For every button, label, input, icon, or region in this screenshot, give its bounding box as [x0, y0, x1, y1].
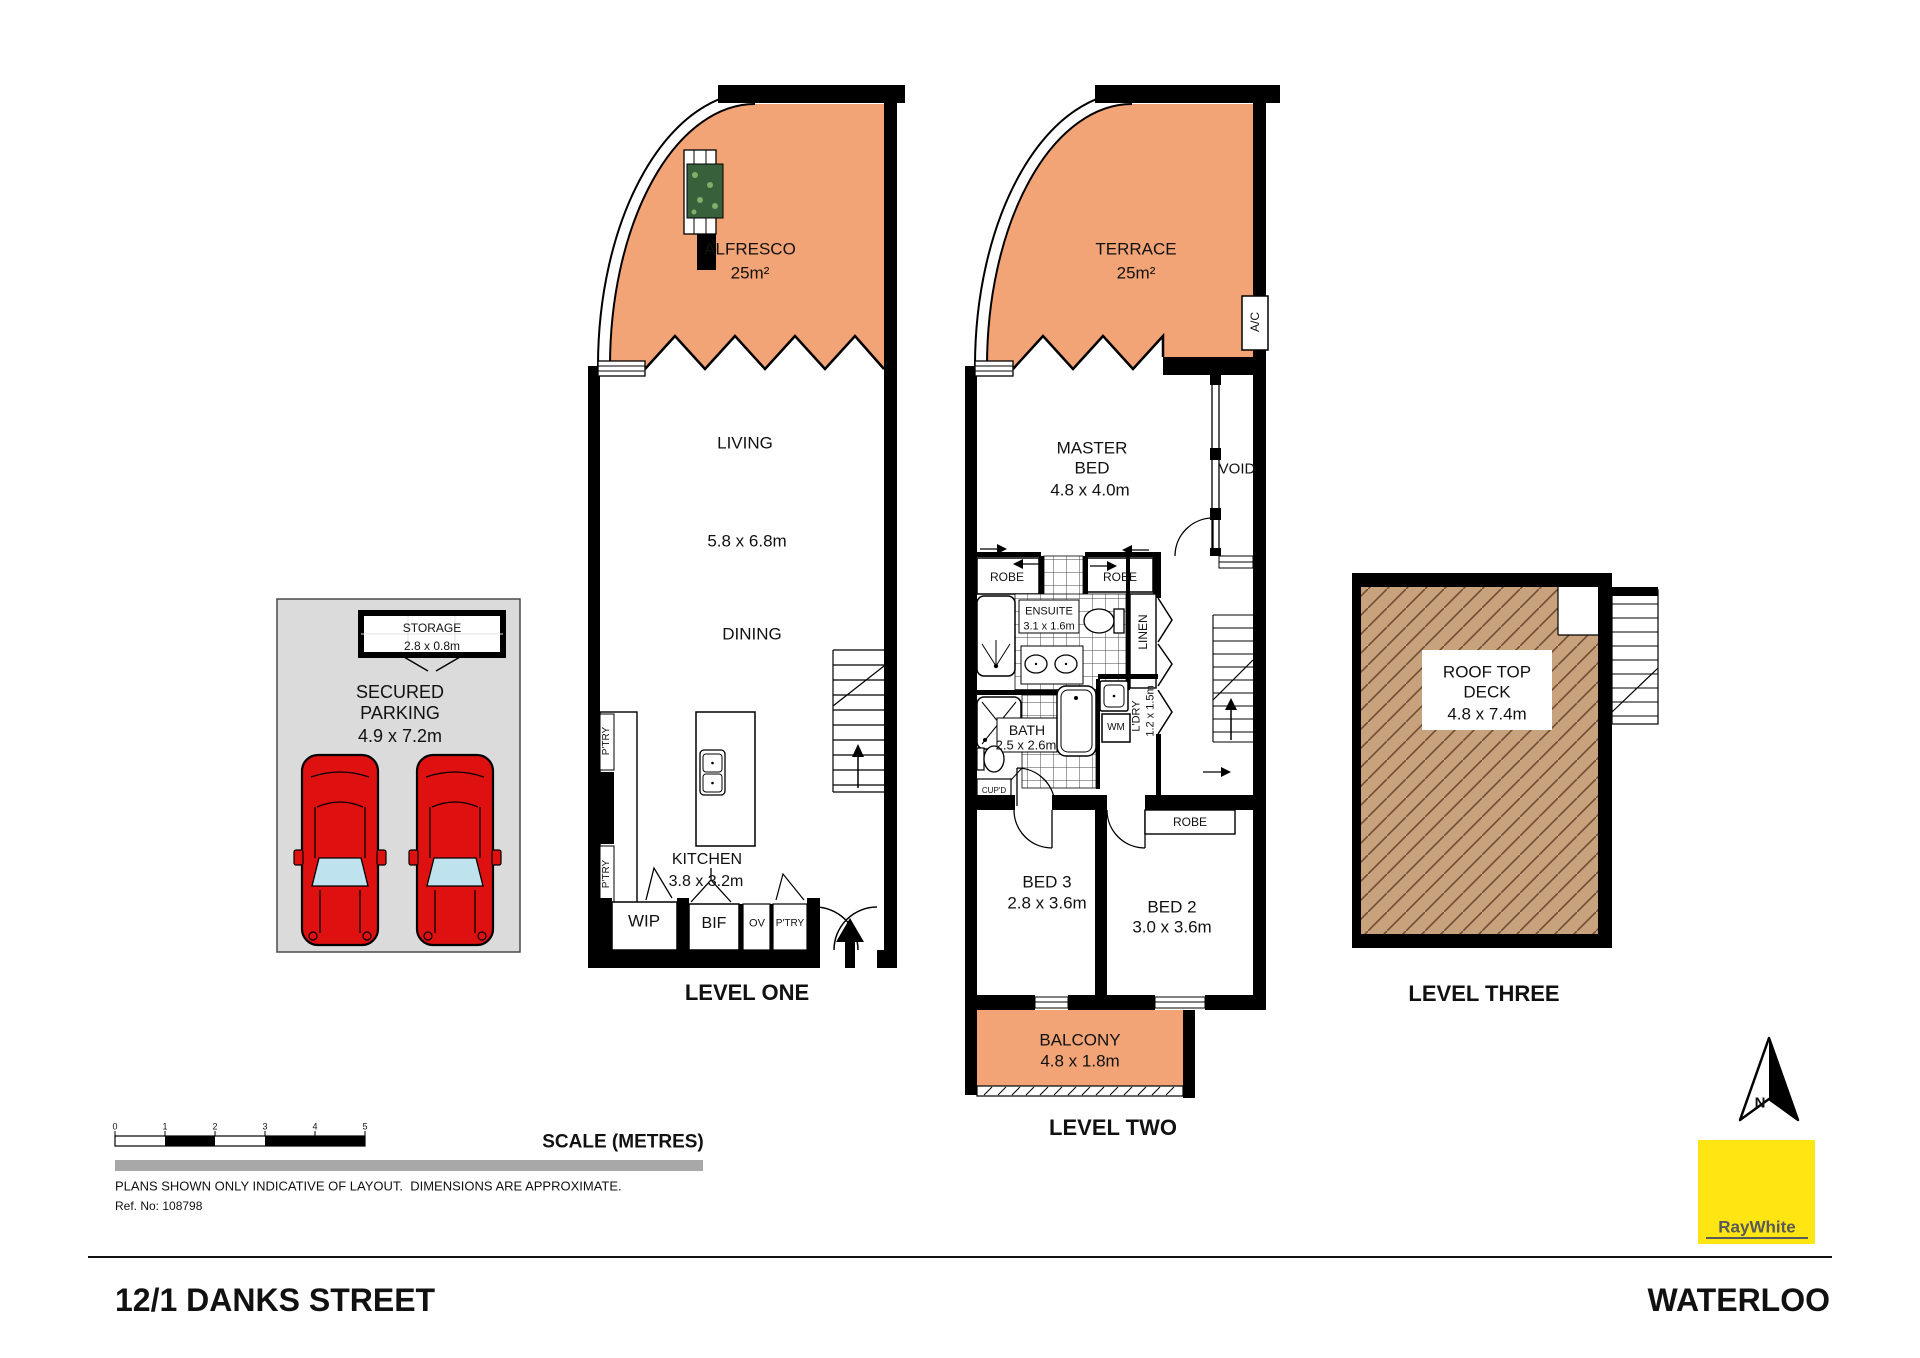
laundry-bifold-door	[1158, 690, 1172, 734]
living-dims: 5.8 x 6.8m	[707, 533, 786, 550]
balustrade	[977, 1086, 1183, 1096]
storage-dims: 2.8 x 0.8m	[404, 640, 460, 652]
wm-label: WM	[1107, 723, 1125, 733]
oven-label: OV	[749, 919, 765, 930]
level-three-title: LEVEL THREE	[1408, 983, 1559, 1005]
ensuite-dims: 3.1 x 1.6m	[1023, 622, 1074, 633]
alfresco-window	[598, 361, 645, 376]
kitchen-dims: 3.8 x 3.2m	[669, 874, 744, 890]
parking-line2: PARKING	[360, 704, 440, 722]
bath-dims: 2.5 x 2.6m	[996, 739, 1057, 752]
terrace-area: 25m²	[1117, 265, 1156, 282]
stairs3-icon	[1612, 587, 1658, 724]
stairs2-icon	[1203, 615, 1253, 777]
linen-label: LINEN	[1137, 614, 1149, 649]
bif-label: BIF	[702, 916, 727, 932]
ac-label: A/C	[1249, 312, 1261, 332]
floorplan-page: ALFRESCO25m²LIVING5.8 x 6.8mDININGKITCHE…	[0, 0, 1920, 1358]
robe-left-label: ROBE	[990, 571, 1024, 583]
disclaimer-text: PLANS SHOWN ONLY INDICATIVE OF LAYOUT. D…	[115, 1180, 622, 1193]
scale-tick-0: 0	[112, 1123, 117, 1132]
level-one-plan	[588, 85, 905, 968]
bed3-dims: 2.8 x 3.6m	[1007, 895, 1086, 912]
scale-bar	[115, 1131, 365, 1146]
pantry-bottom-label: P'TRY	[776, 919, 804, 929]
kitchen-label: KITCHEN	[672, 852, 742, 868]
robe-right-label: ROBE	[1103, 571, 1137, 583]
shower-icon	[977, 596, 1015, 676]
linen-bifold-doors	[1158, 598, 1172, 686]
floorplan-graphics	[0, 0, 1920, 1358]
master-line2: BED	[1075, 460, 1110, 477]
void-label: VOID	[1219, 462, 1256, 477]
alfresco-area: 25m²	[731, 265, 770, 282]
bed3-door-swing	[1014, 810, 1052, 848]
bath-label: BATH	[1009, 723, 1045, 737]
alfresco-area-fill	[610, 104, 884, 369]
level-two-plan	[965, 85, 1280, 1098]
rooftop-line2: DECK	[1463, 684, 1510, 701]
scale-tick-5: 5	[362, 1123, 367, 1132]
master-dims: 4.8 x 4.0m	[1050, 482, 1129, 499]
alfresco-label: ALFRESCO	[704, 241, 796, 258]
master-line1: MASTER	[1057, 440, 1128, 457]
entry-arrow-icon	[836, 918, 864, 968]
scale-tick-4: 4	[312, 1123, 317, 1132]
sink-icon	[700, 750, 725, 795]
laundry-dims: 1.2 x 1.5m	[1146, 685, 1157, 736]
ensuite-label: ENSUITE	[1025, 607, 1073, 618]
brand-wordmark: RayWhite	[1718, 1219, 1795, 1236]
balcony-dims: 4.8 x 1.8m	[1040, 1053, 1119, 1070]
right-wall	[1253, 92, 1266, 1010]
bathtub-icon	[1057, 686, 1096, 756]
toilet-icon	[1084, 609, 1124, 633]
reference-number: Ref. No: 108798	[115, 1200, 202, 1212]
scale-title: SCALE (METRES)	[542, 1133, 704, 1152]
terrace-area-fill	[987, 104, 1253, 369]
north-letter: N	[1755, 1096, 1766, 1111]
parking-line1: SECURED	[356, 683, 444, 701]
robe-bed2-label: ROBE	[1173, 816, 1207, 828]
level-two-title: LEVEL TWO	[1049, 1117, 1177, 1139]
wip-label: WIP	[628, 913, 660, 930]
parking-dims: 4.9 x 7.2m	[358, 727, 442, 745]
street-address: 12/1 DANKS STREET	[115, 1284, 435, 1316]
scale-tick-2: 2	[212, 1123, 217, 1132]
kitchen-island	[696, 712, 755, 846]
suburb-name: WATERLOO	[1648, 1284, 1831, 1316]
twin-basins-icon	[1021, 646, 1083, 684]
level-one-title: LEVEL ONE	[685, 982, 809, 1004]
right-wall	[884, 92, 897, 968]
bed2-label: BED 2	[1147, 899, 1196, 916]
parking-area	[277, 599, 520, 952]
footer-rule	[88, 1256, 1832, 1258]
left-wall	[965, 366, 977, 1095]
bed3-label: BED 3	[1022, 874, 1071, 891]
level-three-plan	[1352, 573, 1658, 948]
scale-tick-3: 3	[262, 1123, 267, 1132]
scale-tick-1: 1	[162, 1123, 167, 1132]
cupboard-label: CUP'D	[982, 787, 1006, 795]
laundry-label: L'DRY	[1132, 700, 1143, 731]
bed-divider-wall	[1095, 810, 1107, 1010]
stairs-icon	[833, 650, 884, 792]
storage-label: STORAGE	[403, 622, 461, 634]
dining-label: DINING	[722, 626, 782, 643]
north-arrow-icon	[1740, 1038, 1798, 1120]
balcony-label: BALCONY	[1039, 1032, 1120, 1049]
terrace-label: TERRACE	[1095, 241, 1176, 258]
ensuite-entry-tiles	[1044, 556, 1083, 596]
footer-divider-bar	[115, 1160, 703, 1171]
bed2-dims: 3.0 x 3.6m	[1132, 919, 1211, 936]
stair-landing	[1558, 587, 1598, 635]
left-wall	[588, 366, 600, 968]
void-door-swing	[1175, 518, 1253, 568]
pantry-door	[776, 874, 804, 900]
pantry-upper-label: P'TRY	[602, 727, 612, 755]
living-label: LIVING	[717, 435, 773, 452]
rooftop-line1: ROOF TOP	[1443, 664, 1531, 681]
rooftop-dims: 4.8 x 7.4m	[1447, 706, 1526, 723]
bed2-door-swing	[1107, 810, 1145, 848]
laundry-tub-icon	[1100, 681, 1128, 711]
terrace-window	[975, 361, 1013, 376]
pantry-lower-label: P'TRY	[602, 860, 612, 888]
